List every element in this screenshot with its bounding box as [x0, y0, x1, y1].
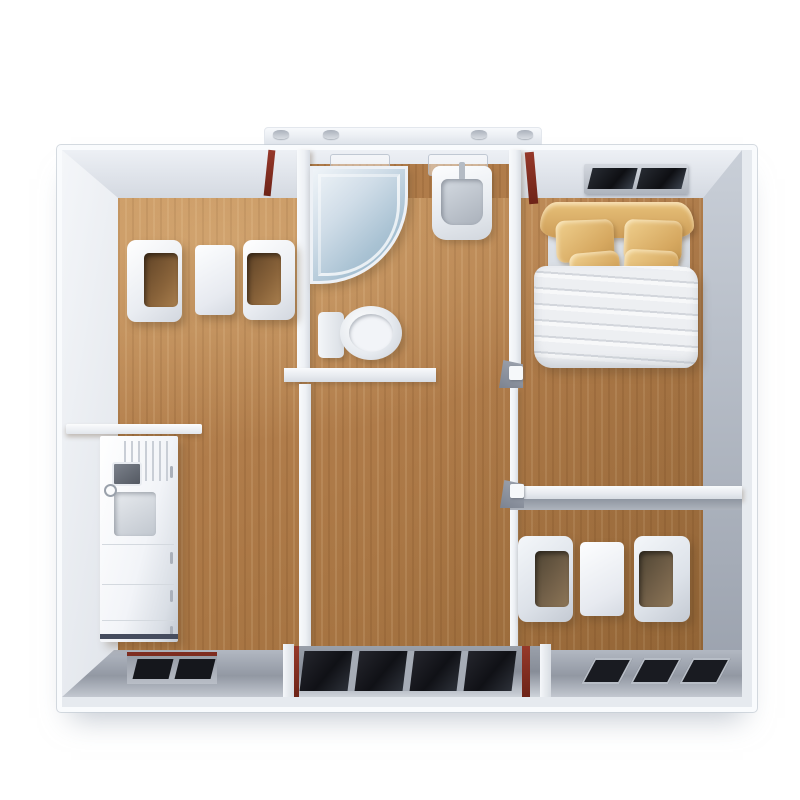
glazed-entry-doors — [294, 646, 540, 697]
right-window-strip — [588, 658, 738, 684]
wall-post — [509, 366, 523, 380]
armchair — [243, 240, 295, 320]
window-pane — [587, 168, 637, 189]
door-pane — [464, 651, 517, 691]
cabinet-handle — [170, 552, 173, 564]
window-pane — [581, 658, 633, 684]
entry-glazing — [300, 651, 517, 691]
door-pane — [409, 651, 462, 691]
entrance-post — [540, 644, 551, 697]
bathroom-bottom-wall — [284, 368, 436, 382]
armchair — [127, 240, 182, 322]
kitchen-sink — [114, 492, 156, 536]
hob — [112, 462, 142, 486]
door-pane — [300, 651, 353, 691]
partition-wall-shadow — [510, 499, 742, 510]
toilet-bowl — [340, 306, 402, 360]
wash-basin — [432, 166, 492, 240]
window-pane — [175, 659, 216, 679]
window-pane — [679, 658, 731, 684]
bolt-icon — [471, 130, 487, 139]
red-frame-accent — [294, 646, 299, 697]
bed-duvet — [534, 266, 698, 368]
bolt-icon — [517, 130, 533, 139]
kitchen-faucet — [104, 484, 117, 497]
armchair-seat — [535, 551, 569, 607]
wall-post — [510, 484, 524, 498]
page: { "scene": { "subject": "prefab-containe… — [0, 0, 800, 800]
basin-faucet — [459, 162, 465, 180]
entrance-post — [283, 644, 294, 697]
toilet-seat — [349, 314, 393, 352]
cabinet-handle — [170, 466, 173, 478]
bolt-icon — [323, 130, 339, 139]
window-pane — [133, 659, 174, 679]
hallway-right-wall — [510, 388, 518, 650]
kitchenette-unit — [100, 436, 178, 642]
coffee-table — [195, 245, 235, 315]
cabinet-seam — [102, 584, 174, 585]
bathroom-left-wall — [297, 150, 310, 380]
armchair-seat — [247, 253, 281, 305]
cabinet-handle — [170, 590, 173, 602]
red-frame-accent — [522, 646, 530, 697]
red-frame-accent — [127, 652, 217, 656]
armchair-seat — [144, 253, 178, 307]
door-pane — [354, 651, 407, 691]
bolt-icon — [273, 130, 289, 139]
hallway-left-wall — [299, 384, 311, 650]
container-shell — [57, 145, 757, 712]
armchair — [518, 536, 573, 622]
kitchen-counter-edge — [66, 424, 202, 434]
wall-face-right — [703, 150, 742, 697]
left-window — [127, 652, 217, 684]
lounge-partition-wall — [510, 486, 742, 499]
armchair-seat — [639, 551, 673, 607]
cabinet-kickboard — [100, 634, 178, 639]
cabinet-seam — [102, 544, 174, 545]
bedroom-window — [584, 164, 688, 194]
bedroom-left-wall — [509, 150, 521, 368]
side-table — [580, 542, 624, 616]
window-pane — [636, 168, 686, 189]
basin-bowl — [441, 179, 483, 225]
cabinet-seam — [102, 620, 174, 621]
window-pane — [630, 658, 682, 684]
armchair — [634, 536, 690, 622]
